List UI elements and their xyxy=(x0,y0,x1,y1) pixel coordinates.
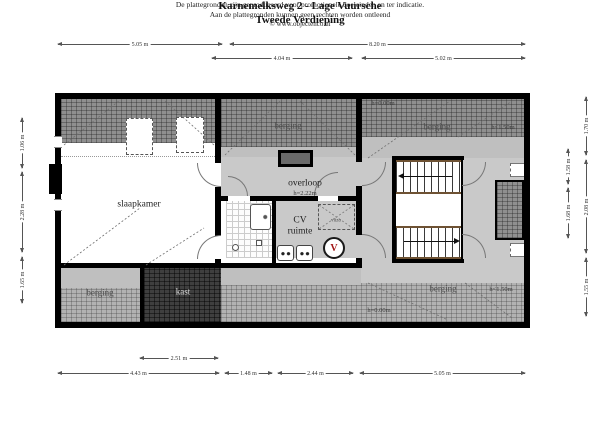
annotation-h0-top: h=0.00m xyxy=(371,101,394,108)
dim-label: 1.48 m xyxy=(238,371,259,377)
room-label-berging-bottom-right: berging xyxy=(429,285,456,294)
disclaimer-line2: Aan de plattegronden kunnen geen rechten… xyxy=(0,10,600,20)
dim-label: 2.51 m xyxy=(169,356,190,362)
dim-label: 1.70 m xyxy=(584,116,590,137)
dim-bottom2-b: 1.48 m xyxy=(225,373,272,374)
room-label-berging-top-right: berging xyxy=(423,123,450,132)
dim-bottom1: 2.51 m xyxy=(140,358,218,359)
dim-label: 1.55 m xyxy=(584,277,590,298)
room-label-berging-bottom-left: berging xyxy=(86,289,113,298)
floorplan-page: Karnemelksweg 2 - Lage Vuursche Tweede V… xyxy=(0,0,600,424)
room-label-slaapkamer: slaapkamer xyxy=(117,200,160,210)
dim-label: 4.04 m xyxy=(272,56,293,62)
dim-bottom2-c: 2.44 m xyxy=(278,373,353,374)
room-label-kast: kast xyxy=(176,288,191,297)
room-label-cv-ruimte: ruimte xyxy=(288,227,313,237)
dim-label: 2.08 m xyxy=(584,196,590,217)
dim-bottom2-d: 5.05 m xyxy=(360,373,525,374)
dim-label: 5.02 m xyxy=(433,56,454,62)
dim-label: 2.44 m xyxy=(305,371,326,377)
annotation-h150-bottom: h<1.50m xyxy=(489,287,512,294)
dim-right-1: 1.70 m xyxy=(586,97,587,155)
dim-label: 1.58 m xyxy=(566,156,572,177)
room-label-berging-top-mid: berging xyxy=(274,122,301,131)
dim-right-3: 1.55 m xyxy=(586,258,587,316)
dim-top2-right: 5.02 m xyxy=(362,58,525,59)
dim-label: 1.68 m xyxy=(566,203,572,224)
annotation-h0-bottom: h=0.00m xyxy=(367,308,390,315)
dim-left-1: 1.06 m xyxy=(22,118,23,168)
disclaimer: De plattegronden zijn geproduceerd voor … xyxy=(0,0,600,30)
dim-label: 1.65 m xyxy=(20,270,26,291)
dim-left-3: 1.65 m xyxy=(22,257,23,303)
dim-bottom2-a: 4.43 m xyxy=(58,373,219,374)
annotation-h150-top: h<1.50m xyxy=(491,125,514,132)
dim-label: 4.43 m xyxy=(128,371,149,377)
dim-top2-left: 4.04 m xyxy=(212,58,352,59)
dim-label: 5.05 m xyxy=(432,371,453,377)
dim-top-left: 5.05 m xyxy=(58,44,222,45)
room-label-overloop: overloop xyxy=(288,179,322,189)
dim-label: 1.06 m xyxy=(20,133,26,154)
room-label-cv: CV xyxy=(293,216,306,226)
dim-label: 2.28 m xyxy=(20,202,26,223)
annotation-overloop-height: h=2.22m xyxy=(293,191,316,198)
disclaimer-line1: De plattegronden zijn geproduceerd voor … xyxy=(0,0,600,10)
dim-right-inner-2: 1.68 m xyxy=(568,188,569,238)
dim-right-inner-1: 1.58 m xyxy=(568,149,569,184)
copyright: © www.objectenco.nl xyxy=(0,20,600,29)
dim-top-right: 8.20 m xyxy=(230,44,525,45)
dim-label: 5.05 m xyxy=(130,42,151,48)
dim-label: 8.20 m xyxy=(367,42,388,48)
dim-left-2: 2.28 m xyxy=(22,172,23,252)
dim-right-2: 2.08 m xyxy=(586,160,587,253)
